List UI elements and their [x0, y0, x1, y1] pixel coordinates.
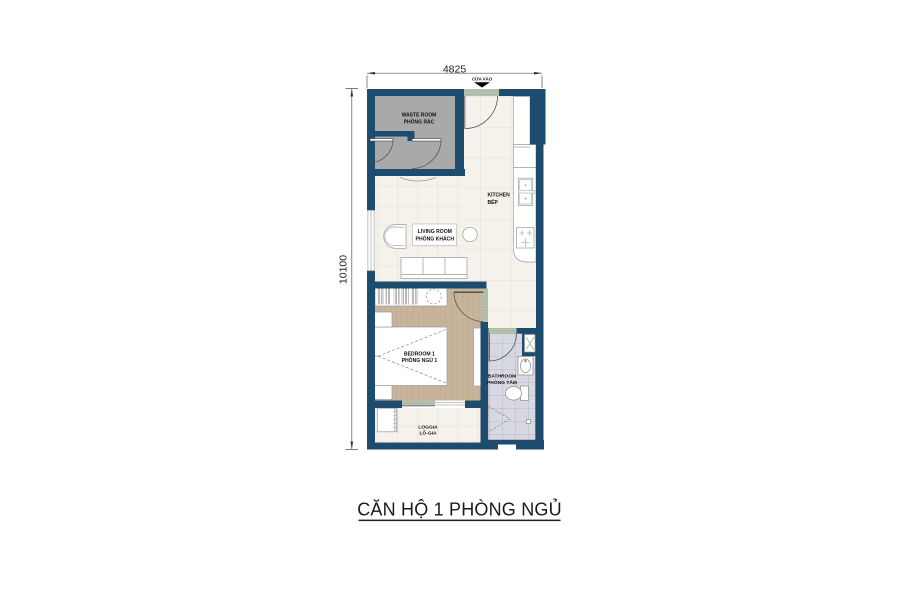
svg-text:BATHROOM: BATHROOM	[488, 373, 516, 379]
svg-text:BEDROOM 1: BEDROOM 1	[404, 351, 435, 357]
svg-text:4825: 4825	[443, 64, 467, 76]
svg-text:CĂN HỘ 1 PHÒNG NGỦ: CĂN HỘ 1 PHÒNG NGỦ	[357, 499, 562, 520]
svg-text:WASTE ROOM: WASTE ROOM	[402, 113, 437, 119]
svg-text:PHÒNG RÁC: PHÒNG RÁC	[404, 117, 435, 125]
svg-text:PHÒNG NGỦ 1: PHÒNG NGỦ 1	[402, 356, 438, 364]
svg-text:PHÒNG KHÁCH: PHÒNG KHÁCH	[416, 235, 455, 243]
svg-text:LOGGIA: LOGGIA	[418, 424, 438, 430]
svg-text:CỬA VÀO: CỬA VÀO	[472, 76, 493, 81]
svg-text:10100: 10100	[338, 255, 350, 284]
svg-text:LIVING ROOM: LIVING ROOM	[418, 229, 452, 235]
svg-text:KITCHEN: KITCHEN	[488, 193, 511, 199]
svg-text:BẾP: BẾP	[488, 199, 499, 206]
